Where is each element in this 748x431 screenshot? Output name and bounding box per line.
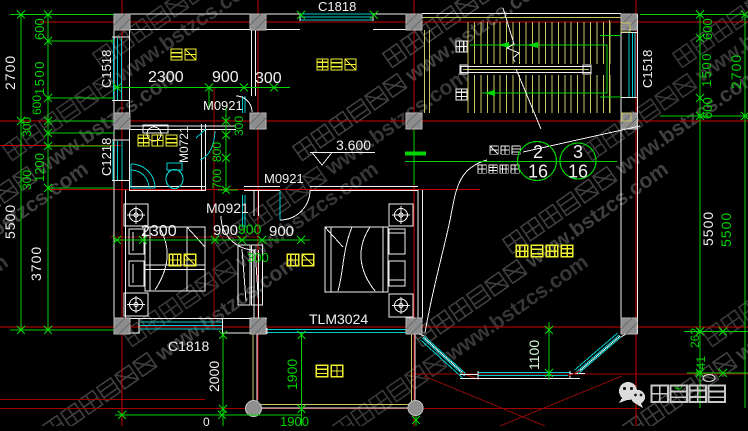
svg-text:300: 300 — [232, 116, 246, 136]
svg-text:900: 900 — [213, 222, 238, 239]
svg-text:1500: 1500 — [699, 52, 714, 87]
svg-text:1900: 1900 — [284, 359, 300, 390]
svg-text:3.600: 3.600 — [336, 137, 371, 153]
svg-text:600: 600 — [700, 97, 715, 119]
svg-text:M0921: M0921 — [264, 171, 304, 186]
svg-text:5500: 5500 — [718, 212, 734, 247]
svg-text:3: 3 — [573, 142, 583, 162]
svg-text:300: 300 — [20, 170, 34, 190]
svg-text:300: 300 — [255, 70, 282, 87]
svg-text:16: 16 — [528, 162, 548, 182]
svg-text:0: 0 — [203, 415, 210, 426]
svg-text:800: 800 — [210, 142, 224, 162]
svg-text:600: 600 — [32, 18, 47, 40]
svg-text:900: 900 — [269, 223, 294, 240]
svg-text:2: 2 — [533, 142, 543, 162]
svg-text:C1518: C1518 — [99, 50, 114, 88]
svg-text:600: 600 — [30, 95, 44, 115]
svg-text:2300: 2300 — [148, 69, 184, 86]
svg-text:900: 900 — [212, 69, 239, 86]
svg-text:C1218: C1218 — [99, 138, 114, 176]
svg-text:5500: 5500 — [2, 204, 18, 239]
svg-text:C1818: C1818 — [168, 338, 209, 354]
svg-text:M0921: M0921 — [206, 200, 249, 216]
svg-text:M0921: M0921 — [203, 98, 243, 113]
svg-text:2700: 2700 — [728, 54, 744, 89]
svg-text:3700: 3700 — [28, 246, 44, 281]
svg-text:1500: 1500 — [32, 60, 47, 95]
svg-text:TLM3024: TLM3024 — [309, 311, 368, 327]
svg-text:700: 700 — [210, 169, 224, 189]
svg-text:1100: 1100 — [526, 340, 542, 370]
svg-text:2700: 2700 — [2, 55, 18, 90]
svg-text:M0721: M0721 — [177, 126, 191, 163]
svg-text:16: 16 — [568, 162, 588, 182]
svg-text:300: 300 — [247, 250, 269, 265]
svg-text:5500: 5500 — [700, 211, 716, 246]
svg-text:1200: 1200 — [32, 153, 47, 182]
svg-text:600: 600 — [700, 18, 715, 40]
svg-text:900: 900 — [238, 221, 262, 237]
svg-text:2300: 2300 — [141, 223, 177, 240]
svg-text:2000: 2000 — [206, 361, 222, 392]
svg-text:C1518: C1518 — [640, 50, 655, 88]
svg-text:741: 741 — [694, 356, 708, 376]
svg-text:262: 262 — [688, 328, 702, 348]
svg-text:300: 300 — [20, 117, 34, 137]
svg-text:1900: 1900 — [280, 414, 309, 426]
svg-text:C1818: C1818 — [318, 0, 356, 14]
